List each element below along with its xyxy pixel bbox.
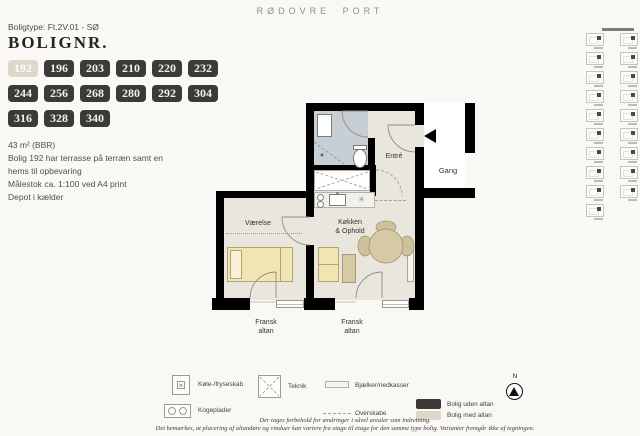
wall-main-top xyxy=(216,191,312,198)
floor-thumbnail-left-4[interactable] xyxy=(586,90,604,103)
thumbnail-caption xyxy=(628,104,637,106)
thumbnail-caption xyxy=(594,47,603,49)
teknik-x-glyph xyxy=(259,376,280,397)
floor-thumbnail-left-5[interactable] xyxy=(586,109,604,122)
hob-circles xyxy=(165,405,190,417)
hob-icon xyxy=(317,201,324,208)
unit-location-marker xyxy=(631,74,635,78)
floor-thumbnail-right-8[interactable] xyxy=(620,166,638,179)
thumbnail-caption xyxy=(628,142,637,144)
floor-thumbnail-left-10[interactable] xyxy=(586,204,604,217)
floor-thumbnail-right-4[interactable] xyxy=(620,90,638,103)
room-label-gang: Gang xyxy=(428,166,468,175)
gang-floor xyxy=(424,103,465,188)
legend-label: Bolig uden altan xyxy=(447,401,494,408)
unit-location-marker xyxy=(597,36,601,40)
legend-label: Teknik xyxy=(288,383,306,390)
thumbnail-caption xyxy=(628,123,637,125)
floorplan: ✳ xyxy=(210,100,480,340)
room-label-line: Fransk xyxy=(332,318,372,327)
upper-cabinets-line xyxy=(375,200,406,201)
unit-location-marker xyxy=(597,150,601,154)
brochure-page: RØDOVRE PORT Boligtype: Ft.2V.01 - SØ BO… xyxy=(0,0,640,436)
unit-location-marker xyxy=(631,112,635,116)
thumbnail-caption xyxy=(628,66,637,68)
thumbnail-caption xyxy=(628,85,637,87)
floor-thumbnail-right-2[interactable] xyxy=(620,52,638,65)
bolig-number-292[interactable]: 292 xyxy=(152,85,182,102)
unit-location-marker xyxy=(597,93,601,97)
bolig-number-328[interactable]: 328 xyxy=(44,110,74,127)
doorway-floor xyxy=(368,111,375,138)
thumbnail-caption xyxy=(594,66,603,68)
floor-thumbnail-right-7[interactable] xyxy=(620,147,638,160)
wall-right-upper xyxy=(415,103,424,125)
unit-location-marker xyxy=(597,131,601,135)
bolig-number-232[interactable]: 232 xyxy=(188,60,218,77)
hob-icon xyxy=(317,194,324,201)
floor-thumbnail-left-1[interactable] xyxy=(586,33,604,46)
wall-gang-bottom xyxy=(418,188,475,198)
kitchen-sink xyxy=(329,194,346,206)
thumbnail-caption xyxy=(594,104,603,106)
fridge-x-glyph: × xyxy=(177,381,185,389)
unit-details: 43 m² (BBR)Bolig 192 har terrasse på ter… xyxy=(8,139,238,204)
window-sill xyxy=(276,300,304,308)
toilet-bowl xyxy=(353,149,367,168)
unit-location-marker xyxy=(631,93,635,97)
bolig-number-203[interactable]: 203 xyxy=(80,60,110,77)
detail-line: Målestok ca. 1:100 ved A4 print xyxy=(8,178,238,191)
bed-fold-line xyxy=(280,248,281,281)
radiator xyxy=(407,250,414,282)
bolig-number-340[interactable]: 340 xyxy=(80,110,110,127)
bolig-number-268[interactable]: 268 xyxy=(80,85,110,102)
wall-gang-right xyxy=(465,103,475,153)
footnote-line-1: Der tages forbehold for ændringer i såve… xyxy=(115,417,575,425)
thumbnail-caption xyxy=(594,218,603,220)
hems-outline xyxy=(226,233,302,234)
thumbnail-caption xyxy=(628,47,637,49)
thumbnail-caption xyxy=(594,123,603,125)
floor-thumbnail-right-1[interactable] xyxy=(620,33,638,46)
hobs-icon xyxy=(164,404,191,418)
floor-thumbnail-left-6[interactable] xyxy=(586,128,604,141)
detail-line: Bolig 192 har terrasse på terræn samt en xyxy=(8,152,238,165)
unit-location-marker xyxy=(631,55,635,59)
unit-location-marker xyxy=(597,169,601,173)
swatch-bolig-uden-altan xyxy=(416,399,441,409)
unit-location-marker xyxy=(597,207,601,211)
wall-top-upper xyxy=(306,103,424,111)
thumbnail-caption xyxy=(594,199,603,201)
bolig-number-256[interactable]: 256 xyxy=(44,85,74,102)
sofa-cushion-line xyxy=(319,264,338,265)
floor-thumbnail-left-9[interactable] xyxy=(586,185,604,198)
side-table xyxy=(342,254,356,283)
unit-info-panel: Boligtype: Ft.2V.01 - SØ BOLIGNR. 192196… xyxy=(8,22,238,204)
floor-thumbnail-left-8[interactable] xyxy=(586,166,604,179)
bath-sink xyxy=(317,114,332,137)
doorway-floor xyxy=(415,125,424,147)
unit-location-marker xyxy=(631,169,635,173)
bolig-number-280[interactable]: 280 xyxy=(116,85,146,102)
footnote-line-2: Det bemærkes, at placering af altandøre … xyxy=(115,425,575,433)
thumbnail-caption xyxy=(594,180,603,182)
compass-icon xyxy=(506,383,523,400)
floor-thumbnail-right-3[interactable] xyxy=(620,71,638,84)
floor-thumbnail-right-9[interactable] xyxy=(620,185,638,198)
bolig-number-196[interactable]: 196 xyxy=(44,60,74,77)
bolig-number-220[interactable]: 220 xyxy=(152,60,182,77)
thumbnail-caption xyxy=(628,199,637,201)
bolig-number-316[interactable]: 316 xyxy=(8,110,38,127)
unit-location-marker xyxy=(631,150,635,154)
bolig-number-210[interactable]: 210 xyxy=(116,60,146,77)
unit-location-marker xyxy=(631,188,635,192)
doorway-floor xyxy=(306,217,314,245)
bolig-number-192[interactable]: 192 xyxy=(8,60,38,77)
thumbnail-caption xyxy=(628,180,637,182)
sidebar-heading-text xyxy=(602,28,634,31)
label-fransk-altan-1: Fransk altan xyxy=(246,318,286,336)
boligtype-label: Boligtype: Ft.2V.01 - SØ xyxy=(8,22,238,32)
brand-header: RØDOVRE PORT xyxy=(0,6,640,16)
legend-label: Bjælker/nedkasser xyxy=(355,382,409,389)
thumbnail-caption xyxy=(628,161,637,163)
floor-thumbnail-right-5[interactable] xyxy=(620,109,638,122)
detail-line: 43 m² (BBR) xyxy=(8,139,238,152)
legend-label: Kogeplader xyxy=(198,407,231,414)
detail-line: hems til opbevaring xyxy=(8,165,238,178)
detail-line: Depot i kælder xyxy=(8,191,238,204)
wall-bottom-3 xyxy=(409,298,424,310)
unit-location-marker xyxy=(597,188,601,192)
bolignr-title: BOLIGNR. xyxy=(8,33,238,53)
floor-thumbnail-right-6[interactable] xyxy=(620,128,638,141)
beam-icon xyxy=(325,381,349,388)
compass-north-label: N xyxy=(506,373,524,380)
room-label-koekken: Køkken & Ophold xyxy=(322,218,378,236)
unit-location-marker xyxy=(631,131,635,135)
teknik-icon xyxy=(258,375,281,398)
room-label-line: Fransk xyxy=(246,318,286,327)
floor-thumbnail-left-7[interactable] xyxy=(586,147,604,160)
unit-location-marker xyxy=(597,112,601,116)
wall-bottom-1 xyxy=(212,298,250,310)
bolig-number-244[interactable]: 244 xyxy=(8,85,38,102)
label-fransk-altan-2: Fransk altan xyxy=(332,318,372,336)
legend-label: Køle-/fryseskab xyxy=(198,381,243,388)
fridge-icon: × xyxy=(172,375,190,395)
unit-location-marker xyxy=(597,74,601,78)
thumbnail-caption xyxy=(594,161,603,163)
floor-thumbnail-left-3[interactable] xyxy=(586,71,604,84)
room-label-entre: Entré xyxy=(374,152,414,161)
unit-location-marker xyxy=(631,36,635,40)
teknik-closet xyxy=(314,170,370,191)
legend-label: Overskabe xyxy=(355,410,386,417)
bed-pillow xyxy=(230,250,242,279)
bolignr-grid: 1921962032102202322442562682802923043163… xyxy=(8,60,228,135)
thumbnail-caption xyxy=(594,142,603,144)
wall-right-main xyxy=(415,147,424,310)
footnote: Der tages forbehold for ændringer i såve… xyxy=(115,417,575,433)
unit-location-marker xyxy=(597,55,601,59)
room-label-line: Køkken xyxy=(322,218,378,227)
room-label-vaerelse: Værelse xyxy=(228,219,288,228)
wall-bottom-2 xyxy=(304,298,335,310)
thumbnail-caption xyxy=(594,85,603,87)
room-label-line: altan xyxy=(246,327,286,336)
window-sill xyxy=(382,300,409,308)
compass-needle xyxy=(509,387,519,396)
wall-left-upper xyxy=(306,103,314,198)
room-label-line: & Ophold xyxy=(322,227,378,236)
ceiling-light-icon: ✳ xyxy=(358,196,365,204)
wall-left-main xyxy=(216,191,224,310)
wall-room-divider-a xyxy=(306,191,314,217)
floor-thumbnail-left-2[interactable] xyxy=(586,52,604,65)
room-label-line: altan xyxy=(332,327,372,336)
upper-cabinets-icon xyxy=(323,413,351,414)
